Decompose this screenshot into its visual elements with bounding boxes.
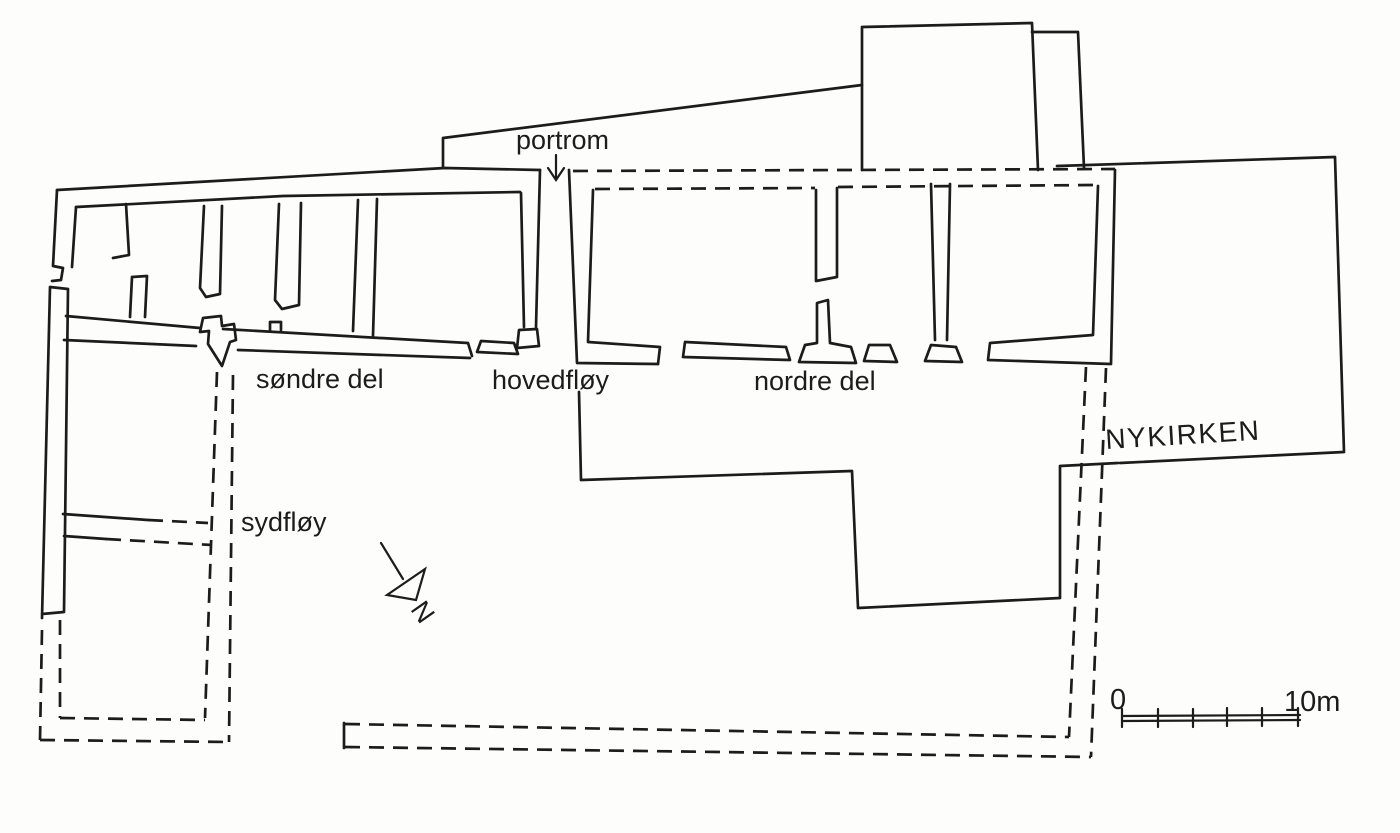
label-nordre-del: nordre del (754, 366, 876, 396)
room4-east-wall (521, 193, 524, 327)
sydfloy-cross-wall (63, 514, 148, 539)
label-portrom: portrom (516, 125, 609, 155)
scale-bar-ticks (1122, 708, 1298, 727)
wall-nub (270, 322, 281, 331)
sydfloy-inner-south (60, 718, 205, 720)
scale-zero-label: 0 (1110, 684, 1126, 716)
sydfloy-cross-dashed-b (106, 539, 212, 545)
main-top-wall-inner (76, 192, 520, 207)
partition-f (931, 184, 950, 340)
down-arrow-icon (548, 155, 564, 180)
perimeter-south-upper (345, 724, 1069, 737)
partition-c (353, 199, 377, 336)
scale-bar: 0 10m (1110, 684, 1340, 727)
north-arrow-line (381, 543, 403, 579)
solid-walls (42, 23, 1344, 748)
partition-e-lower (799, 300, 856, 363)
churchside-wall-inner (1069, 367, 1086, 737)
lower-extension-outline (579, 392, 1118, 608)
nordre-top-inner-east (838, 185, 1097, 187)
nordre-top-inner-west (595, 188, 815, 189)
n1-west-wall-inner (588, 190, 660, 364)
south-wall-west-upper (66, 316, 200, 328)
site-plan: N 0 10m portrom søndre del hovedfløy nor… (0, 0, 1400, 833)
partition-a (200, 206, 222, 297)
top-annex-large (862, 23, 1038, 170)
sydfloy-outer-south (40, 740, 230, 742)
portrom-east-wall (569, 170, 658, 364)
annex-connector-line (443, 85, 862, 168)
partition-b (275, 203, 301, 309)
label-nykirken: NYKIRKEN (1104, 415, 1261, 455)
main-left-wall-inner (72, 207, 76, 267)
main-left-wall (52, 190, 63, 281)
sydfloy-cross-dashed-a (148, 520, 208, 523)
south-wall-west-lower (64, 340, 196, 346)
north-arrow-letter: N (405, 595, 441, 628)
door-block-east (864, 345, 897, 362)
portrom-arrow (548, 155, 564, 180)
nordre-top-outer (573, 169, 1115, 171)
scale-end-label: 10m (1284, 686, 1340, 718)
pointed-wall (200, 316, 236, 366)
site-plan-drawing: N 0 10m portrom søndre del hovedfløy nor… (0, 0, 1400, 833)
main-top-wall-outer (57, 168, 540, 190)
south-wall-south-face (238, 350, 470, 358)
perimeter-south-lower (345, 747, 1091, 757)
sydfloy-west-wall (42, 287, 68, 618)
scale-bar-lines (1122, 715, 1300, 721)
label-sondre-del: søndre del (256, 364, 384, 394)
partition-e-upper (816, 188, 837, 281)
nykirken-outline (1057, 157, 1344, 463)
partition-west-l (113, 204, 129, 258)
sydfloy-outer-west (40, 630, 42, 740)
top-annex-small (1032, 32, 1084, 168)
north-arrow: N (381, 543, 441, 629)
label-hovedfloy: hovedfløy (492, 365, 610, 395)
n1-door-block (683, 342, 790, 360)
portrom-west-foot (517, 329, 539, 348)
label-sydfloy: sydfløy (241, 507, 327, 537)
portrom-west-wall (536, 170, 540, 327)
n3-east-walls (988, 170, 1115, 364)
partition-west-stub (130, 276, 147, 317)
sydfloy-east-outer (229, 375, 233, 742)
door-block-west (477, 341, 518, 354)
north-arrow-head-icon (387, 569, 425, 600)
partition-f-base (925, 345, 962, 362)
